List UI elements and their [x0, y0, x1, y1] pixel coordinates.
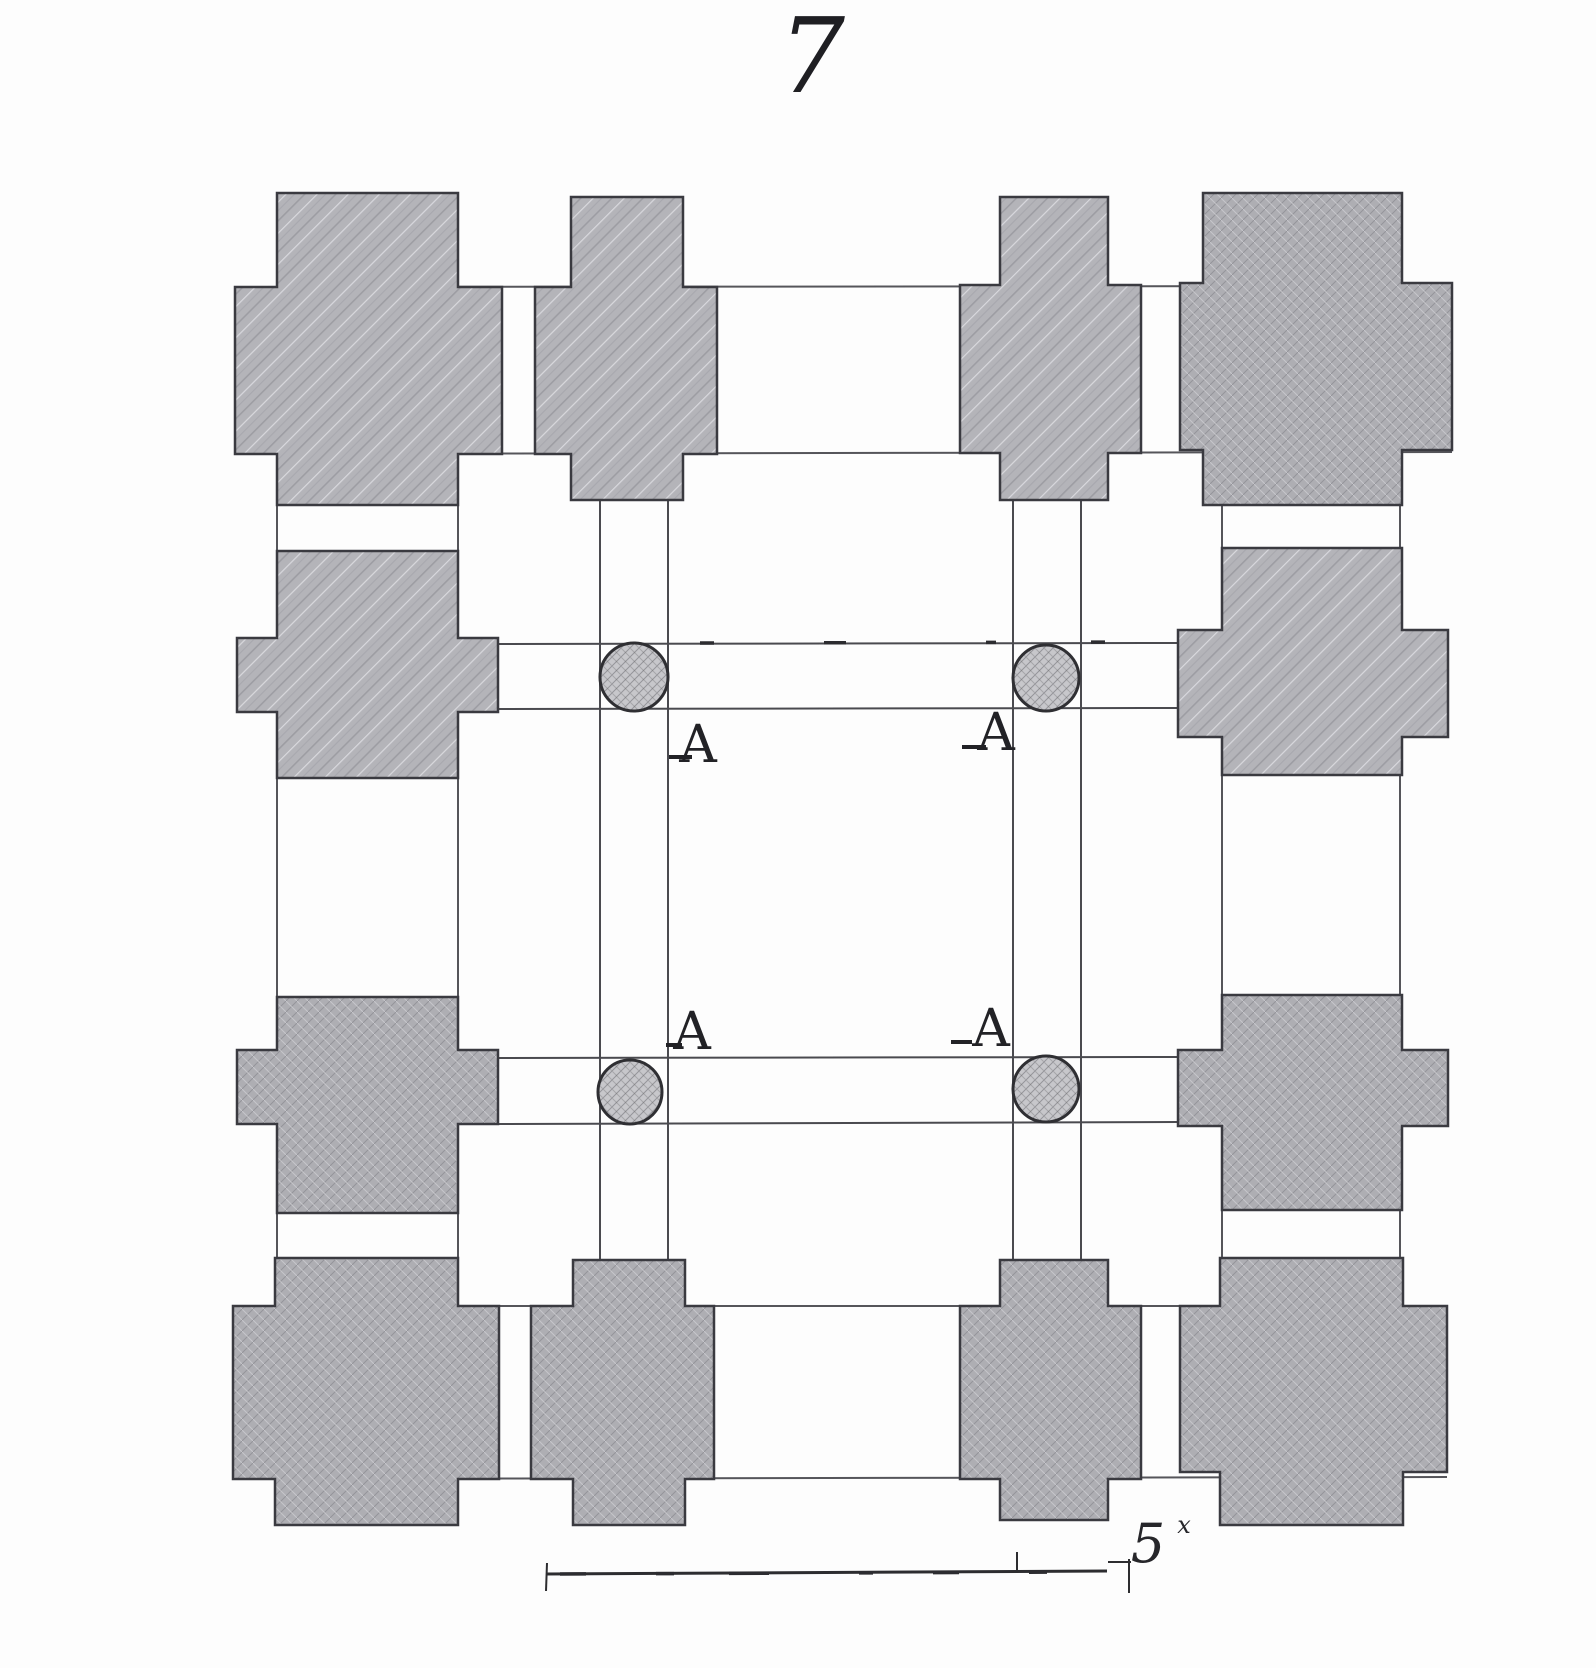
column-label-lower-left: A — [672, 1002, 712, 1062]
pier-corner-bottom-left — [233, 1258, 499, 1525]
interior-band-lines — [498, 500, 1178, 1260]
pier-corner-top-left — [235, 193, 502, 505]
pier-bottom-middle-right — [960, 1260, 1141, 1520]
pier-right-middle-lower — [1178, 995, 1448, 1210]
column-label-lower-right: A — [971, 999, 1011, 1059]
scale-value: 5 — [1131, 1512, 1165, 1575]
scale-left-tick — [546, 1563, 547, 1591]
pier-corner-top-right — [1180, 193, 1452, 505]
column-circle-lower-left — [598, 1060, 662, 1124]
column-label-upper-left: A — [678, 715, 718, 775]
pier-corner-bottom-right — [1180, 1258, 1447, 1525]
pier-left-middle-upper — [237, 551, 498, 778]
pier-right-middle-upper — [1178, 548, 1448, 775]
piers-group — [233, 193, 1452, 1525]
scale-superscript-mark: x — [1177, 1511, 1191, 1539]
band-horizontal-bottom-inner — [498, 1057, 1178, 1058]
column-labels-group: A A A A — [666, 703, 1016, 1062]
pier-bottom-middle-left — [531, 1260, 714, 1525]
column-circle-upper-left — [600, 643, 668, 711]
column-circle-upper-right — [1013, 645, 1079, 711]
plan-drawing: A A A A 7 5 x — [0, 0, 1596, 1668]
column-circle-lower-right — [1013, 1056, 1079, 1122]
figure-number: 7 — [779, 0, 846, 117]
band-horizontal-top-inner — [498, 708, 1178, 709]
column-label-upper-right: A — [976, 703, 1016, 763]
pier-top-middle-left — [535, 197, 717, 500]
engraving-sheet: A A A A 7 5 x — [0, 0, 1596, 1668]
pier-left-middle-lower — [237, 997, 498, 1213]
pier-top-middle-right — [960, 197, 1141, 500]
scale-bar-line — [546, 1571, 1107, 1574]
